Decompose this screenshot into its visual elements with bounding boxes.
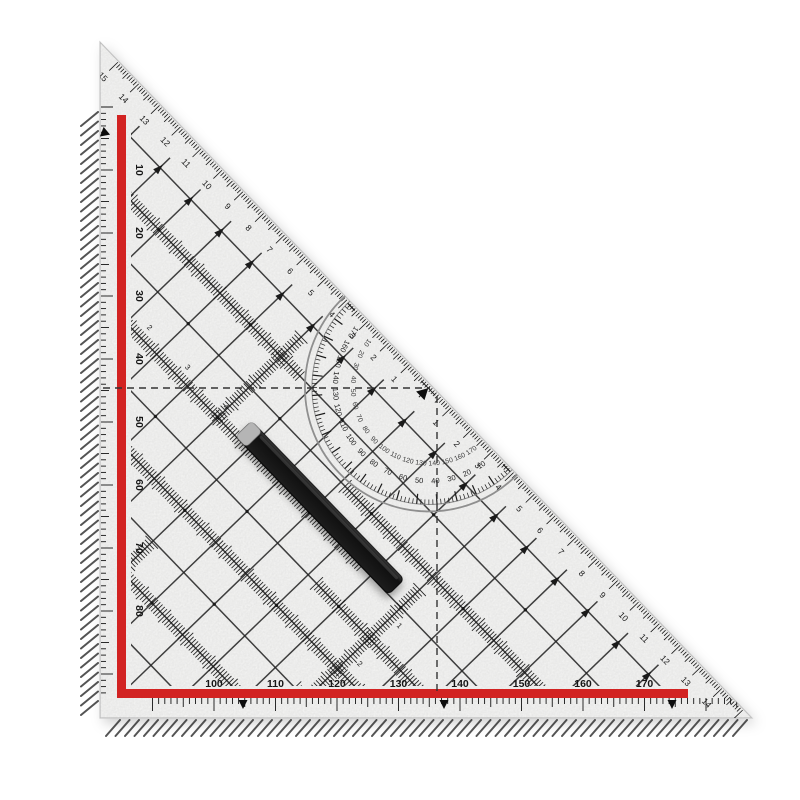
svg-text:50: 50 [133,416,145,428]
svg-text:170: 170 [636,678,654,690]
svg-text:40: 40 [431,476,440,486]
svg-text:140: 140 [451,678,469,690]
svg-text:50: 50 [349,389,357,397]
svg-text:10: 10 [133,164,145,176]
svg-text:100: 100 [205,678,223,690]
svg-text:120: 120 [328,678,346,690]
svg-text:130: 130 [390,678,408,690]
svg-text:150: 150 [513,678,531,690]
svg-text:60: 60 [133,479,145,491]
product-photo: 1234561234151413121110987654321123456789… [0,0,800,800]
svg-text:20: 20 [133,227,145,239]
svg-text:110: 110 [267,678,284,690]
svg-text:130: 130 [415,459,427,467]
drafting-triangle: 1234561234151413121110987654321123456789… [0,0,800,800]
svg-text:130: 130 [331,387,341,400]
svg-text:50: 50 [414,476,423,486]
svg-text:140: 140 [331,371,341,384]
svg-text:30: 30 [133,290,145,302]
svg-text:40: 40 [133,353,145,365]
svg-text:40: 40 [349,375,357,383]
svg-text:140: 140 [428,460,440,468]
svg-text:160: 160 [574,678,592,690]
svg-text:70: 70 [133,542,145,554]
svg-text:80: 80 [133,605,145,617]
svg-text:4: 4 [276,736,285,745]
